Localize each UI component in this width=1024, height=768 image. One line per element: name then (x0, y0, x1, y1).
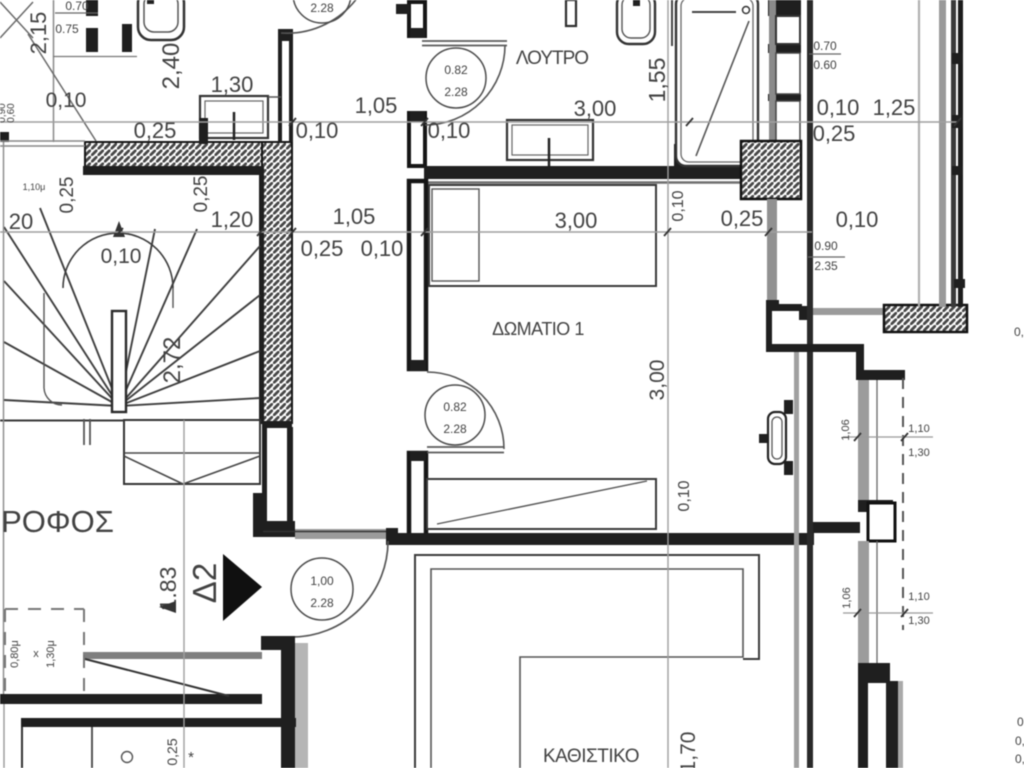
svg-text:1,05: 1,05 (333, 204, 376, 229)
svg-text:1,30: 1,30 (211, 72, 254, 97)
svg-text:0,10: 0,10 (101, 245, 142, 268)
svg-text:0.82: 0.82 (444, 63, 468, 77)
svg-text:0,25: 0,25 (57, 177, 78, 214)
svg-text:2,40: 2,40 (158, 43, 185, 90)
svg-text:1,06: 1,06 (841, 587, 853, 608)
svg-text:*: * (188, 749, 194, 766)
svg-text:0,10: 0,10 (836, 207, 879, 232)
svg-text:0,10: 0,10 (1014, 325, 1024, 339)
svg-text:0,10: 0,10 (46, 89, 87, 112)
svg-text:x: x (33, 648, 39, 660)
svg-text:0,6: 0,6 (1015, 734, 1024, 748)
svg-text:0,10: 0,10 (428, 118, 471, 143)
svg-text:ΚΑΘΙΣΤΙΚΟ: ΚΑΘΙΣΤΙΚΟ (543, 746, 639, 767)
svg-text:ΟΡΟΦΟΣ: ΟΡΟΦΟΣ (0, 504, 114, 539)
svg-text:20: 20 (9, 209, 33, 234)
svg-text:0,10: 0,10 (296, 118, 339, 143)
svg-text:ΔΩΜΑΤΙΟ 1: ΔΩΜΑΤΙΟ 1 (492, 319, 584, 339)
svg-text:1,55: 1,55 (644, 58, 670, 103)
svg-text:1,30: 1,30 (908, 447, 929, 459)
svg-text:0,10: 0,10 (361, 236, 404, 261)
svg-text:0.75: 0.75 (55, 22, 79, 36)
svg-text:2.28: 2.28 (443, 422, 467, 436)
svg-text:1,70: 1,70 (677, 732, 700, 768)
svg-text:3,00: 3,00 (646, 360, 669, 401)
svg-text:1,00: 1,00 (310, 574, 334, 588)
svg-text:2.28: 2.28 (444, 85, 468, 99)
svg-text:0,25: 0,25 (301, 236, 344, 261)
svg-text:0.60: 0.60 (813, 58, 837, 72)
svg-text:1,30μ: 1,30μ (45, 640, 57, 668)
svg-text:3,00: 3,00 (555, 208, 598, 233)
svg-text:2.28: 2.28 (310, 1, 334, 15)
svg-text:1,06: 1,06 (840, 419, 852, 440)
svg-text:0,25: 0,25 (191, 176, 212, 213)
svg-text:1,05: 1,05 (355, 93, 398, 118)
svg-text:0,10: 0,10 (817, 95, 860, 120)
svg-text:0,60: 0,60 (6, 103, 17, 123)
svg-text:0,25: 0,25 (164, 738, 180, 765)
svg-text:1,30: 1,30 (908, 615, 929, 627)
svg-text:0,10: 0,10 (676, 480, 693, 511)
svg-text:2.28: 2.28 (310, 596, 334, 610)
svg-text:1,10μ: 1,10μ (23, 182, 46, 192)
svg-text:0,10: 0,10 (670, 190, 687, 221)
svg-text:Δ2: Δ2 (186, 563, 223, 603)
svg-text:2,72: 2,72 (159, 337, 186, 384)
svg-text:0.82: 0.82 (443, 400, 467, 414)
svg-text:2,15: 2,15 (26, 12, 51, 55)
svg-text:0,25: 0,25 (721, 206, 764, 231)
svg-text:0,9: 0,9 (1017, 715, 1024, 729)
svg-text:3,00: 3,00 (574, 96, 617, 121)
svg-text:2.35: 2.35 (814, 259, 838, 273)
svg-text:1,10: 1,10 (908, 423, 929, 435)
svg-text:0,25: 0,25 (813, 121, 856, 146)
svg-text:0,7: 0,7 (1015, 752, 1024, 766)
svg-text:0.70: 0.70 (813, 39, 837, 53)
svg-text:0,80μ: 0,80μ (9, 640, 21, 668)
svg-text:0,25: 0,25 (134, 118, 177, 143)
svg-text:1,20: 1,20 (211, 207, 254, 232)
svg-text:1,10: 1,10 (908, 591, 929, 603)
svg-text:0.70: 0.70 (65, 0, 89, 13)
svg-text:0.90: 0.90 (814, 239, 838, 253)
svg-text:1,25: 1,25 (873, 95, 916, 120)
svg-text:ΛΟΥΤΡΟ: ΛΟΥΤΡΟ (516, 48, 588, 69)
